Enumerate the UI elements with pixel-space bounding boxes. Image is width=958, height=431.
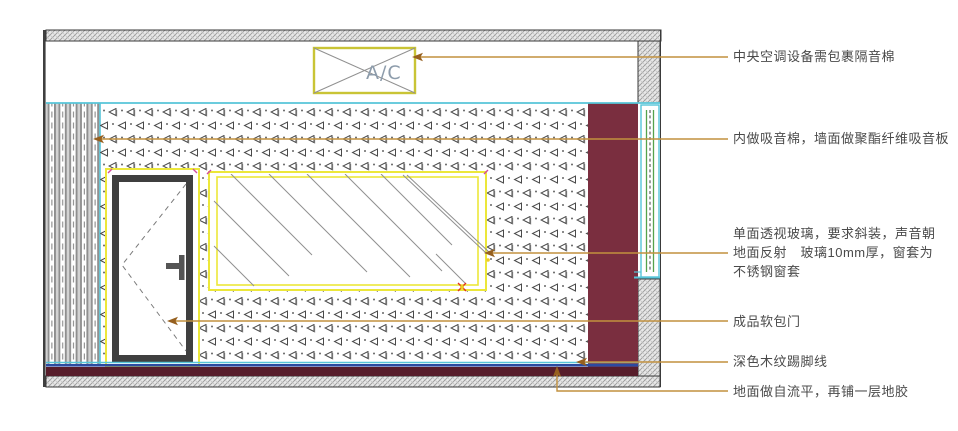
curtain-panel [46, 103, 100, 364]
skirting-board [46, 367, 638, 376]
right-wall-lower-section [638, 279, 660, 387]
left-wall-line [43, 30, 46, 387]
one-way-glass-window [207, 170, 490, 291]
ceiling-slab [46, 30, 661, 41]
soft-pack-door [106, 169, 199, 367]
ac-unit: A/C [314, 48, 415, 93]
annotation-floor: 地面做自流平，再铺一层地胶 [733, 384, 909, 400]
annotation-skirting: 深色木纹踢脚线 [733, 354, 828, 370]
annotation-ac-insulation: 中央空调设备需包裹隔音棉 [733, 49, 895, 65]
annotation-wall-absorber: 内做吸音棉，墙面做聚酯纤维吸音板 [733, 131, 949, 147]
annotation-one-way-glass: 单面透视玻璃，要求斜装，声音朝 地面反射 玻璃10mm厚，窗套为 不锈钢窗套 [733, 224, 958, 282]
ac-label: A/C [366, 62, 402, 84]
floor-slab [46, 376, 660, 387]
maroon-wall-panel [588, 103, 638, 367]
right-wall-upper-section [638, 41, 660, 103]
annotation-soft-door: 成品软包门 [733, 314, 801, 330]
floor-covering-line [46, 364, 638, 367]
elevation-screenshot: A/C [0, 0, 958, 431]
